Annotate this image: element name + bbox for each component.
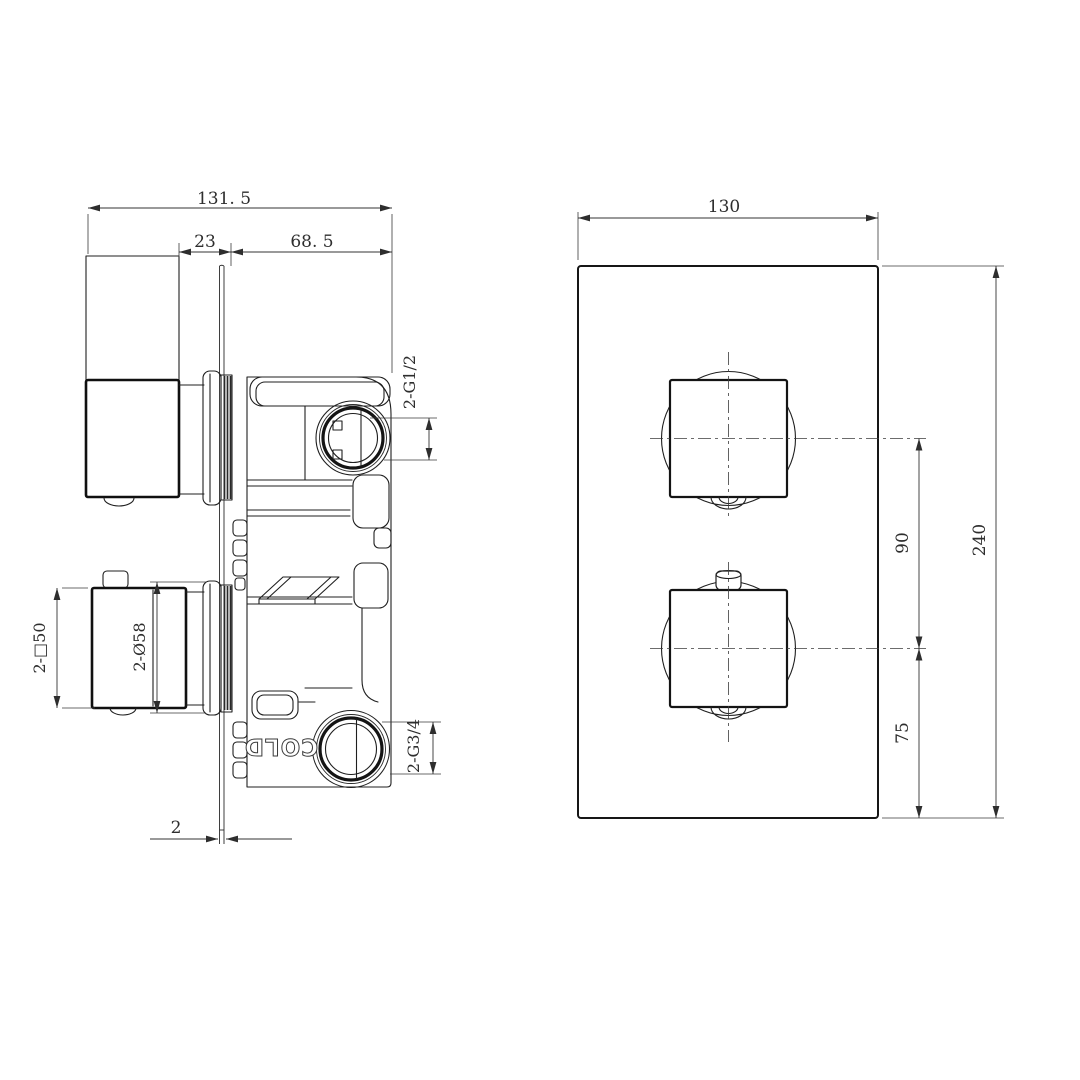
handle-top-side	[86, 380, 204, 506]
technical-drawing-page: COLD	[0, 0, 1080, 1080]
wall-plate-edge	[220, 265, 225, 844]
side-view: COLD	[30, 189, 441, 844]
mounting-bar	[250, 377, 390, 406]
lower-section	[252, 608, 378, 719]
dim-label-handle-gap: 23	[194, 232, 216, 252]
dim-escutcheon-diameter-58: 2-Ø58	[130, 582, 206, 713]
bracket-strap	[259, 577, 339, 604]
cold-engraving: COLD	[244, 733, 318, 759]
dim-label-bottom-port-thread: 2-G3/4	[404, 719, 423, 773]
trim-plate-front	[578, 266, 878, 818]
dim-label-body-depth: 68. 5	[290, 232, 333, 252]
dim-body-depth-68-5: 68. 5	[231, 232, 392, 255]
handle-top-front	[662, 372, 796, 510]
body-ledges	[247, 480, 352, 604]
dim-label-top-port-thread: 2-G1/2	[400, 355, 419, 409]
shower-valve-technical-drawing: COLD	[0, 0, 1080, 1080]
inlet-port-top	[316, 401, 390, 475]
escutcheon-bottom-side	[203, 581, 232, 715]
dim-handle-square-50: 2-□50	[30, 588, 95, 708]
dim-label-plate-width: 130	[708, 197, 740, 217]
dim-label-bottom-offset: 75	[893, 722, 913, 744]
front-view: 130 240 90 75	[578, 197, 1004, 818]
dim-label-plate-height: 240	[970, 524, 990, 556]
dim-label-plate-thickness: 2	[171, 818, 182, 838]
dim-plate-width-130: 130	[578, 197, 878, 260]
cartridge-housing-side	[86, 256, 179, 380]
dim-handle-spacing-90: 90	[893, 439, 922, 649]
dim-top-port-thread-g12: 2-G1/2	[370, 355, 437, 460]
dim-label-escutcheon-diameter: 2-Ø58	[130, 622, 149, 671]
dim-label-handle-spacing: 90	[893, 532, 913, 554]
outlet-port-bottom	[313, 711, 390, 788]
dim-label-handle-square: 2-□50	[30, 622, 49, 673]
override-button-side	[103, 571, 128, 588]
valve-body: COLD	[233, 377, 391, 788]
escutcheon-top-side	[203, 371, 232, 505]
dim-bottom-offset-75: 75	[893, 649, 922, 819]
dim-handle-gap-23: 23	[179, 232, 231, 266]
dim-overall-depth-131-5: 131. 5	[88, 189, 392, 373]
retaining-clips-upper	[233, 520, 247, 590]
body-lugs-right	[353, 475, 391, 608]
dim-label-overall-depth: 131. 5	[197, 189, 251, 209]
